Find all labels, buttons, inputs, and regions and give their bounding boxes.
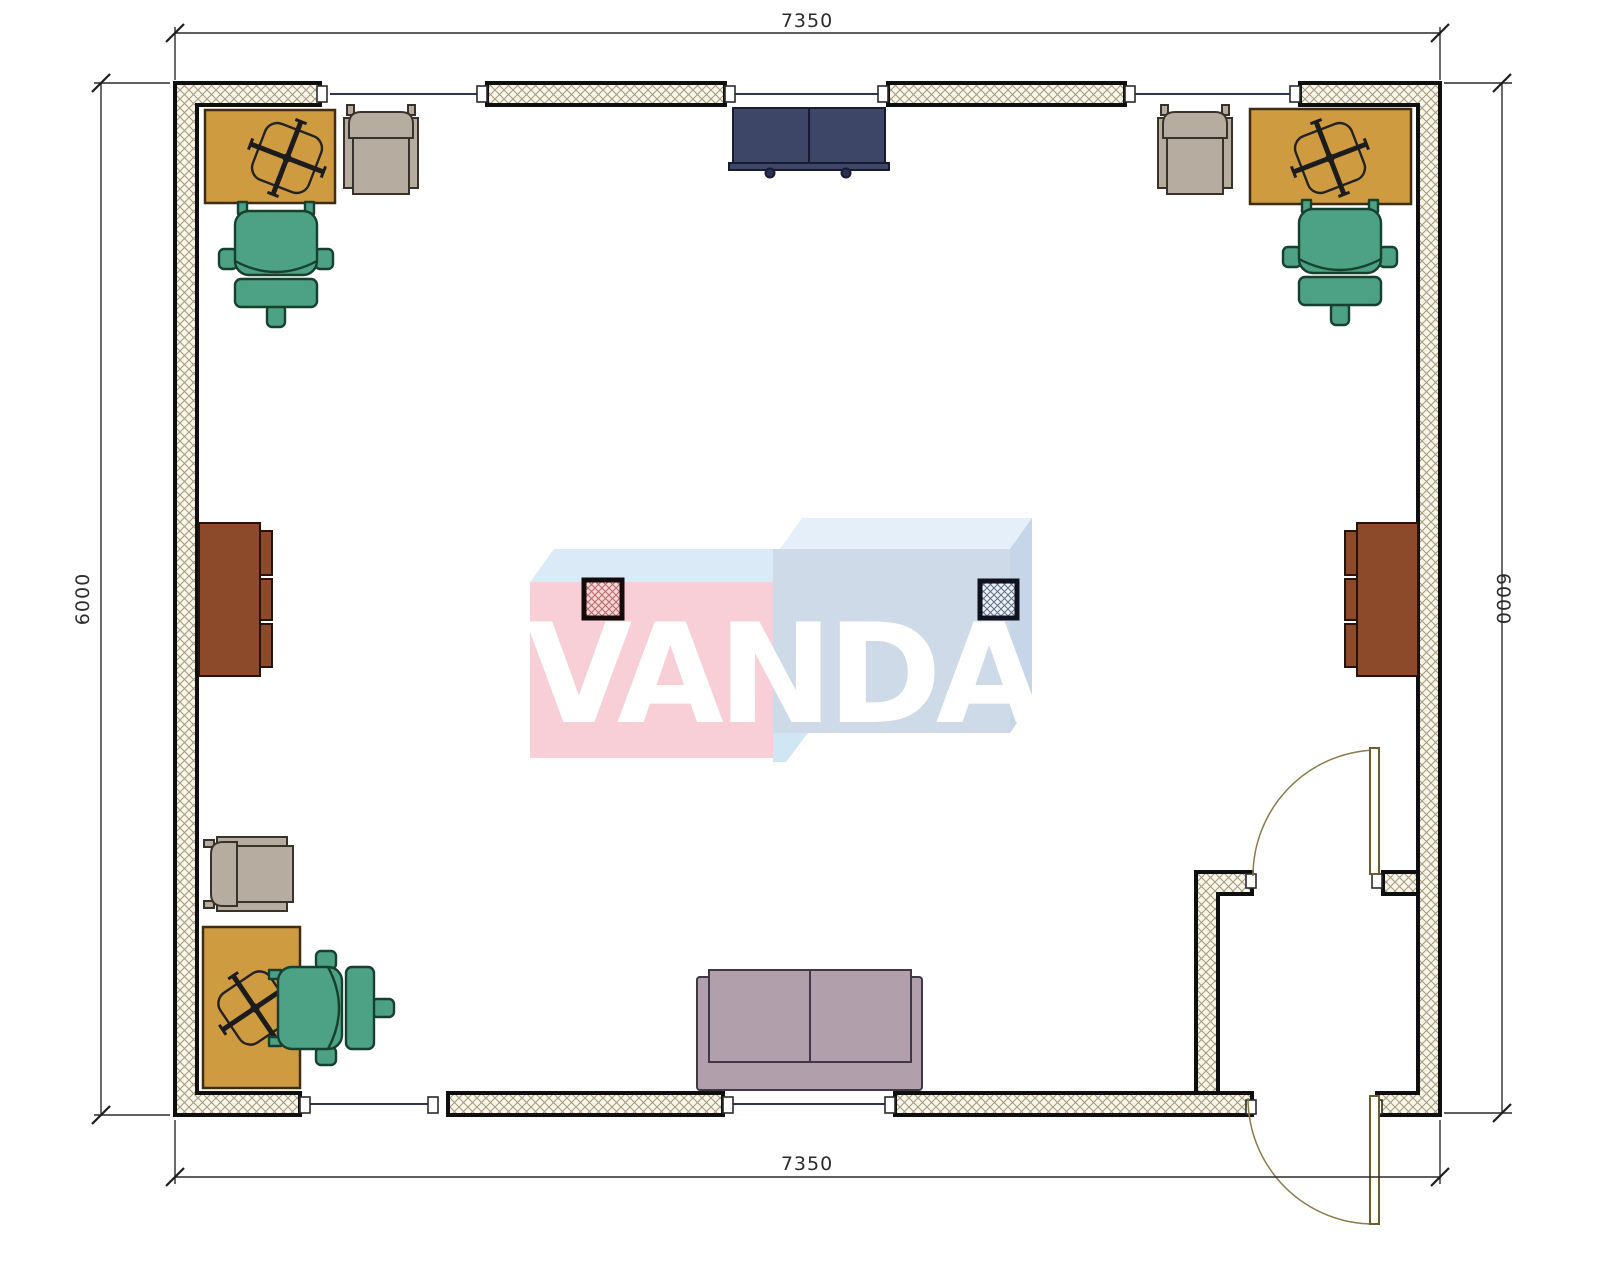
office-chair-top-left <box>219 202 333 327</box>
sofa-cushion-right <box>810 970 911 1062</box>
floor-plan-drawing: VANDA <box>0 0 1600 1280</box>
office-chair-bottom-left <box>269 951 394 1065</box>
doors <box>1248 748 1379 1224</box>
dimension-right: 6000 <box>1492 573 1514 625</box>
wall-top-pier-right <box>888 83 1125 105</box>
floor-plan-canvas: VANDA <box>0 0 1600 1280</box>
credenza <box>729 108 889 178</box>
wall-top-pier-left <box>487 83 725 105</box>
watermark-blue-top-face <box>780 518 1032 549</box>
sofa-cushion-left <box>709 970 810 1062</box>
sofa <box>697 970 922 1090</box>
dimension-bottom: 7350 <box>781 1153 833 1175</box>
interior-door-leaf <box>1370 748 1379 874</box>
guest-chair-top-left <box>344 105 418 194</box>
interior-door-swing-arc <box>1253 750 1379 876</box>
wall-bottom-pier-right <box>895 1093 1252 1115</box>
vestibule-partition-wall <box>1196 872 1252 1093</box>
column-pink <box>584 580 622 618</box>
guest-chair-bottom-left <box>204 837 293 911</box>
cabinet-left <box>199 523 272 676</box>
vanda-watermark: VANDA <box>525 518 1042 762</box>
wall-bottom-pier-left <box>448 1093 723 1115</box>
credenza-base <box>729 163 889 170</box>
entry-door-swing-arc <box>1248 1098 1374 1224</box>
credenza-knob-left <box>766 169 775 178</box>
cabinet-right <box>1345 523 1418 676</box>
vestibule-right-stub-wall <box>1383 872 1418 894</box>
office-chair-top-right <box>1283 200 1397 325</box>
watermark-left-top-face <box>530 549 780 582</box>
dimension-top: 7350 <box>781 10 833 32</box>
entry-door-leaf <box>1370 1096 1379 1224</box>
dimension-left: 6000 <box>72 573 94 625</box>
guest-chair-top-right <box>1158 105 1232 194</box>
credenza-knob-right <box>842 169 851 178</box>
column-blue <box>980 581 1017 618</box>
